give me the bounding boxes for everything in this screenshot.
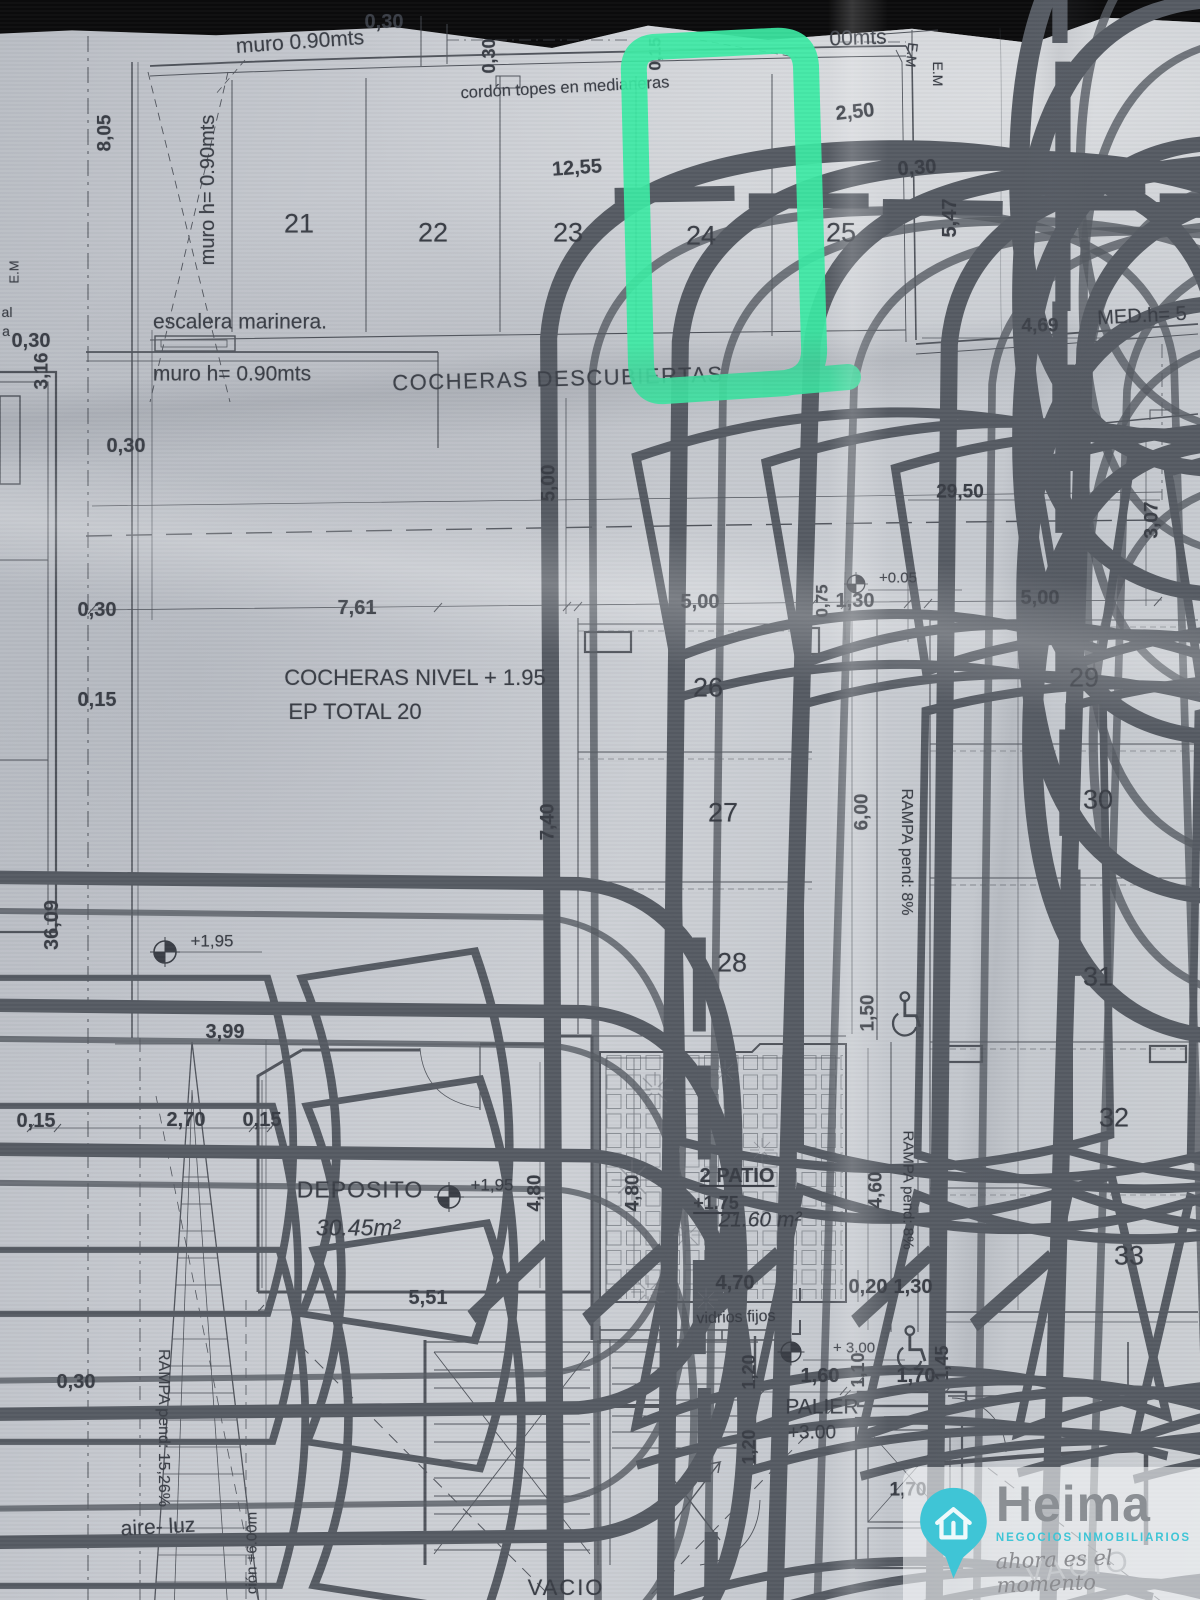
highlight-annotation-space-24	[0, 0, 1200, 1600]
heima-pin-house-icon	[915, 1475, 992, 1593]
heima-logo: Heima NEGOCIOS INMOBILIARIOS ahora es el…	[903, 1467, 1200, 1600]
brand-subtitle: NEGOCIOS INMOBILIARIOS	[996, 1532, 1200, 1544]
brand-name: Heima	[996, 1481, 1200, 1529]
brand-tagline: ahora es el momento	[995, 1542, 1200, 1597]
photo-of-floor-plan: 0,30 muro 0.90mts 0,30 cordón topes en m…	[0, 0, 1200, 1600]
